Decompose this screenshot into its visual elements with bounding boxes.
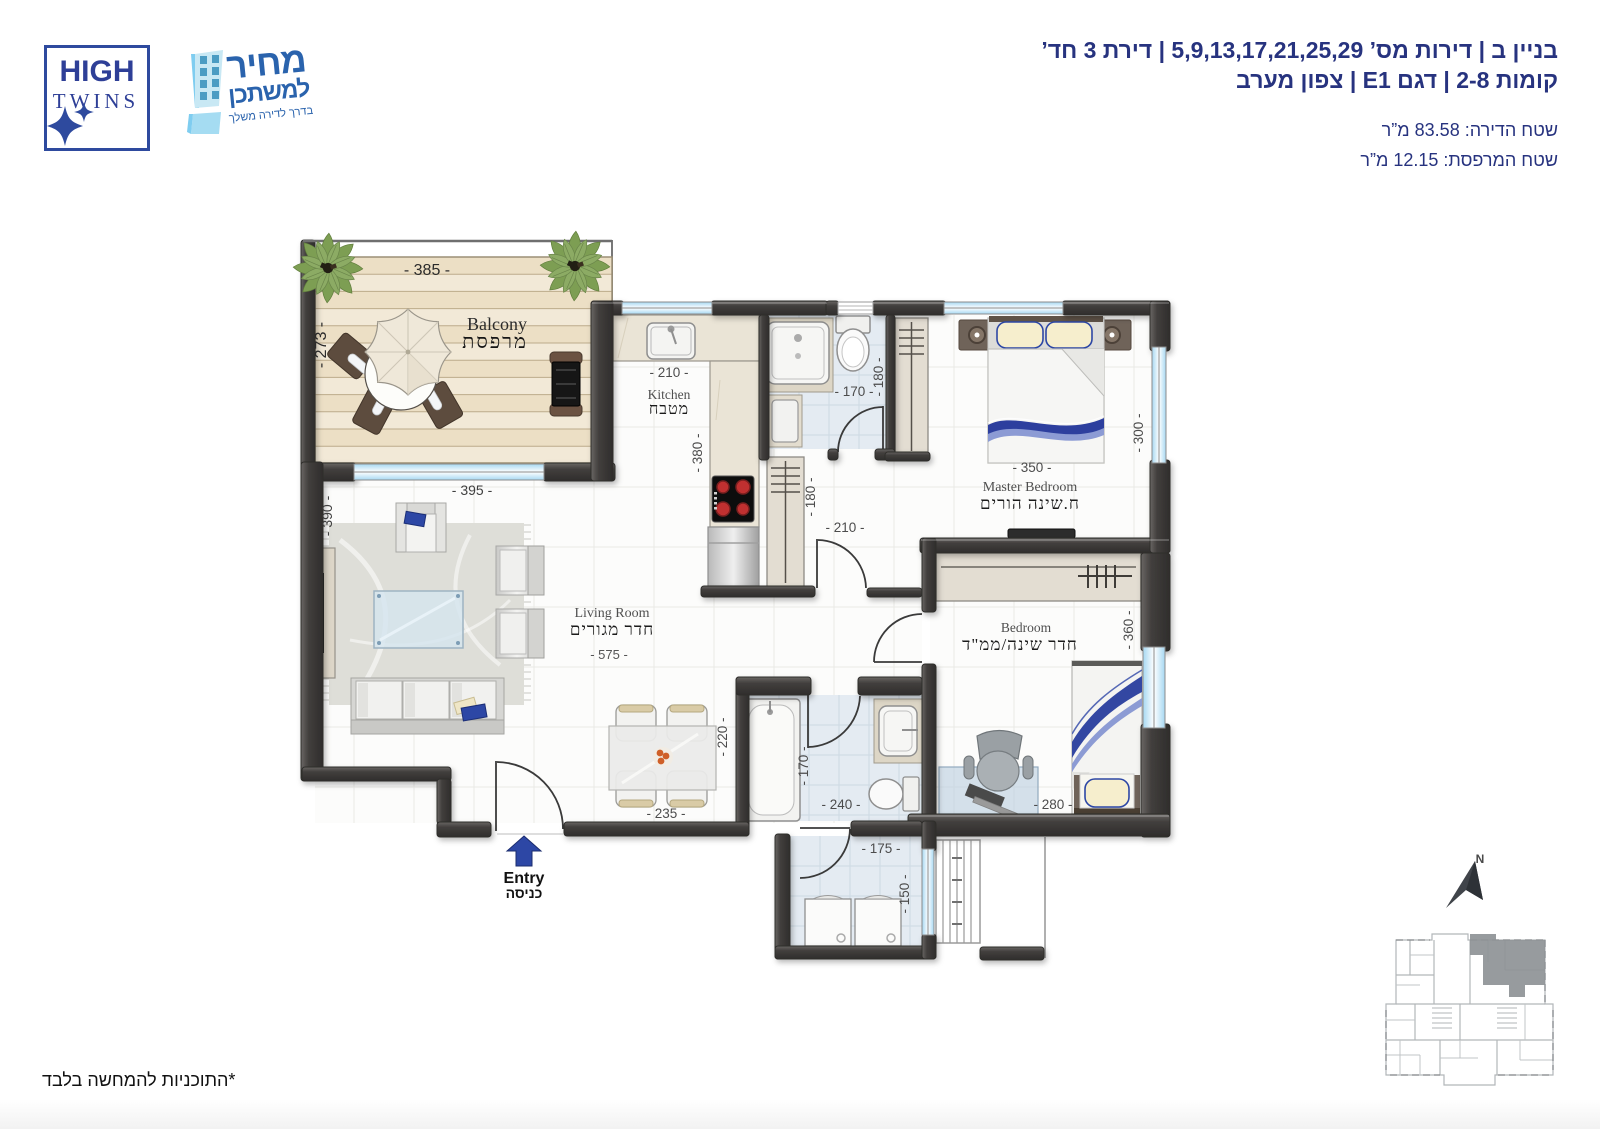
svg-text:- 390 -: - 390 - [319,495,335,536]
svg-text:- 380 -: - 380 - [690,433,705,472]
svg-text:Living Room: Living Room [574,606,649,621]
svg-text:חדר מגורים: חדר מגורים [570,620,654,639]
svg-text:- 180 -: - 180 - [803,477,818,516]
svg-text:- 300 -: - 300 - [1131,413,1146,452]
svg-text:מרפסת: מרפסת [462,331,528,353]
svg-text:- 170 -: - 170 - [834,384,873,399]
svg-text:N: N [1476,852,1485,866]
svg-text:- 170 -: - 170 - [796,746,811,785]
svg-text:ח.שינה הורים: ח.שינה הורים [980,494,1080,513]
svg-text:- 175 -: - 175 - [861,841,900,856]
svg-text:Kitchen: Kitchen [648,387,691,402]
svg-text:- 575 -: - 575 - [590,647,628,662]
svg-text:- 210 -: - 210 - [649,365,688,380]
svg-text:- 220 -: - 220 - [715,717,730,756]
svg-text:- 385 -: - 385 - [404,262,450,279]
svg-text:- 240 -: - 240 - [821,797,860,812]
svg-text:- 150 -: - 150 - [897,874,912,913]
svg-text:Master Bedroom: Master Bedroom [983,480,1078,495]
svg-text:כניסה: כניסה [506,885,543,901]
svg-text:- 273 -: - 273 - [313,322,330,368]
svg-text:- 280 -: - 280 - [1033,797,1072,812]
svg-text:- 180 -: - 180 - [871,357,886,396]
svg-text:מטבח: מטבח [649,401,689,418]
svg-text:- 235 -: - 235 - [646,806,685,821]
svg-text:- 350 -: - 350 - [1012,460,1051,475]
svg-text:- 210 -: - 210 - [825,520,864,535]
svg-text:- 395 -: - 395 - [452,482,493,498]
svg-text:Bedroom: Bedroom [1001,620,1052,635]
svg-text:חדר שינה/ממ"ד: חדר שינה/ממ"ד [962,635,1078,654]
svg-text:- 360 -: - 360 - [1121,610,1136,649]
